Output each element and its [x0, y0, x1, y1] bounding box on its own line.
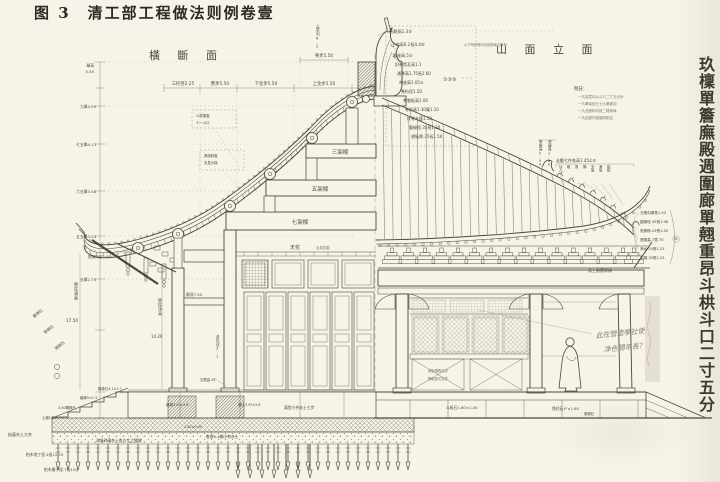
ann-ladder-jugao: 舉高 — [86, 63, 94, 68]
architectural-drawing: 剎靶高1.3③正吻高6.2長4.4⑤以下吻獸脊料均按琉璃瓦料例獸座高.5③扣脊筒… — [0, 0, 720, 482]
ann-douban: 斗板石1.80×1.40 — [446, 405, 478, 410]
ann-xiangyanshi: 象眼石 — [584, 411, 595, 416]
ann-taduo: 踏跺石 — [54, 340, 66, 351]
ann-corner-caption: 角上飛簷詳樣 — [588, 267, 612, 273]
ann-qiali: 掐裏灰土大夯 — [8, 431, 32, 437]
ann-chuidai: 垂帶石 — [32, 308, 44, 319]
ann-yanzhu-tonggao-v: 17.50 — [66, 318, 78, 323]
ann-linghua: 隔扇菱花另詳 — [428, 376, 448, 381]
right-margin-caption: 玖檁單簷廡殿週圍廊單翹重昂斗栱斗口二寸五分 — [693, 56, 717, 456]
ann-zoushou: 走獸七件各高1.45①② — [556, 157, 596, 163]
ann-ladder-4: 五五舉3.03 — [76, 234, 96, 239]
ann-yanzhu-tonggao: 簷柱通高 — [74, 281, 79, 302]
ann-corner-4: 連簷高.7寬.70 — [640, 237, 664, 242]
ann-beast-4: 獅 — [583, 164, 587, 169]
label-side-elevation: 山 面 立 面 — [496, 41, 600, 57]
ann-langshen: 廊深7.50 — [186, 292, 203, 297]
ann-shangyanchu: 上簷出6.2 — [316, 23, 320, 49]
ann-funote-title: 附註： — [574, 85, 587, 92]
ann-beam-5: 五架樑 — [312, 185, 329, 193]
ann-ladder-1: 九舉4.95 — [80, 104, 97, 109]
ann-shaba: 剎靶高1.3③ — [389, 28, 412, 35]
ann-box2-l2: 另見大樣 — [204, 160, 218, 165]
ann-ladder-jugao-v: 5.50 — [86, 69, 95, 74]
ann-corner-1: 方眼勾頭長1.50 — [640, 210, 667, 215]
ann-jifang: 脊枋高1.30寬1.10 — [405, 106, 439, 112]
ann-topdim-1: 三桁徑2.25 — [172, 80, 195, 87]
ann-beast-5: 天馬 — [591, 165, 595, 173]
ann-yanzhu-jinggao-v: 14.29 — [151, 334, 163, 339]
ann-wangban: 望板厚.35長1.50 — [411, 133, 443, 139]
scale-figure — [559, 338, 581, 391]
ann-corner-6: 勾頭.35長1.25 — [640, 255, 665, 260]
ann-beast-7: 狻猊 — [607, 164, 611, 173]
ann-beam-3: 三架樑 — [332, 148, 349, 156]
ann-zhuangzi: 柏木樁子徑.7長12◎ — [44, 467, 79, 472]
ann-lantu: 攔土3.6²×3.6 — [238, 402, 260, 407]
ann-geceng: 各層2.4細小夯灰土 — [206, 434, 239, 439]
foundation — [52, 418, 414, 478]
book-page: 图 3 清工部工程做法则例卷壹 橫 斷 面 山 面 立 面 玖檁單簷廡殿週圍廊單… — [0, 0, 720, 482]
ann-beast-2: 龍 — [567, 164, 571, 169]
ann-corner-ref: ① — [674, 236, 678, 241]
ann-jiaozhu: 角柱石4²×1.80 — [552, 406, 580, 411]
ann-funote-1: 一凡高寬均以斗口二寸五分計 — [578, 94, 624, 99]
ann-gujing: 古鏡高.45 — [200, 377, 216, 382]
ann-corner-2: 圓椽徑.45長1.98 — [640, 219, 669, 224]
label-cross-section: 橫 斷 面 — [149, 47, 224, 63]
ann-naochuan: 腦椽徑.35長1.30 — [409, 124, 441, 130]
ann-wenzuo: 吻座高1.05③ — [399, 79, 424, 85]
ann-funote-4: 一凡走獸件數臨時酌定 — [578, 115, 613, 120]
ann-taduo-dim: 踏跺5×1.3 — [80, 395, 97, 400]
ann-jiangduo: 3.50礓跺石 — [58, 405, 76, 410]
ann-sangdun: 磉墩3.6²×3.6 — [166, 402, 188, 407]
ann-jidianban: 脊墊板高1.00 — [403, 97, 428, 103]
ann-shouzuo: 獸座高.5③ — [393, 52, 413, 58]
ann-tongji: 通脊高1.75長2.60 — [397, 70, 431, 76]
ann-tuchen: 土襯1×.2 — [42, 415, 57, 420]
ann-beast-3: 鳳 — [575, 164, 579, 169]
ann-ladder-3: 六五舉3.58 — [76, 189, 96, 194]
ann-corner-3: 飛簷椽.25長1.40 — [640, 228, 669, 233]
ann-funote-3: 一凡瓦獸料均按二樣琉璃 — [578, 108, 617, 113]
ann-ref-circles: ①③③ — [443, 77, 456, 83]
ann-diding: 柏木地丁徑.4長12-15 — [26, 452, 64, 457]
ann-jinzhu-jing: 金柱徑3.1 — [216, 334, 220, 358]
figure-title: 图 3 清工部工程做法则例卷壹 — [34, 2, 275, 23]
ann-topdim-3: 下金步5.50 — [255, 80, 278, 87]
ann-box1-l1: 斗栱攢當 — [196, 113, 210, 118]
ann-fujimu: 扶脊木徑1.50 — [407, 115, 432, 121]
ann-qunban: 裙板雕飾另詳 — [428, 368, 448, 373]
ann-dim-18090: 1.80×0.90 — [184, 425, 202, 429]
ann-corner-5: 滴水.25長1.25 — [640, 246, 665, 251]
ann-beast-1: 仙人 — [559, 164, 563, 173]
ann-jietiaoshi: 階條石4.1×1.7 — [98, 386, 122, 391]
ann-beast-6: 海馬 — [599, 164, 603, 173]
ann-tiaoyanheng: 挑簷桁徑3.00 — [88, 254, 111, 259]
ann-box1-l2: 十一斗口 — [196, 120, 210, 125]
ann-yanzhu-jinggao: 簷柱凈高 — [158, 297, 162, 316]
side-elevation — [374, 18, 712, 418]
ann-jiheng: 脊桁徑1.50 — [401, 88, 422, 94]
ann-xiangyan: 象眼石 — [43, 324, 55, 335]
ann-kouji: 扣脊筒瓦高1.1 — [395, 61, 422, 67]
ann-beam-7: 七架樑 — [292, 218, 309, 226]
ann-funote-2: 一凡舉架依五七九舉遞加 — [578, 101, 617, 106]
ann-haiman: 海墁碎磚灰土各方丈之鋪墁 — [96, 438, 142, 443]
ann-chuishou: 垂獸高2.50 — [539, 139, 543, 167]
ann-tianhua: 天花 — [290, 244, 300, 251]
ann-ladder-2: 七五舉4.13 — [76, 142, 96, 147]
ann-topdim-2: 簷步5.50 — [211, 80, 229, 87]
ann-box2-l1: 昂翹斜度 — [204, 153, 218, 158]
ann-topdim-jibu: 脊步5.50 — [315, 52, 333, 59]
ann-topdim-4: 上金步5.50 — [313, 80, 336, 87]
ann-tianhua-note: 另見詳圖 — [316, 245, 330, 250]
ann-zhengwen: 正吻高6.2長4.4⑤ — [391, 41, 425, 48]
ann-ladder-5: 五舉2.75 — [80, 277, 97, 282]
ann-mantang: 滿堂小夯灰土七步 — [284, 405, 315, 410]
cross-section — [52, 62, 376, 420]
